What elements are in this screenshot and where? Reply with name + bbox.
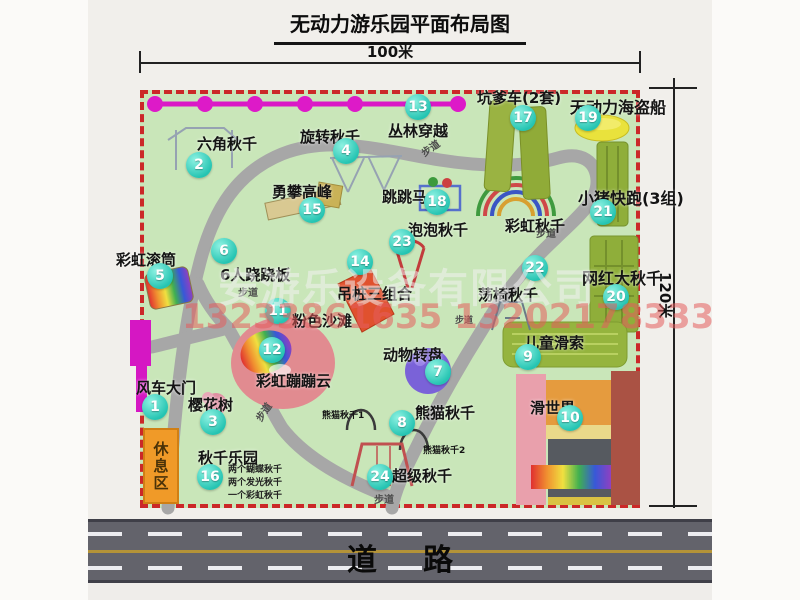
watermark-phone: 13233861635 13202178333 <box>182 297 714 337</box>
height-dimension-tick-bottom <box>649 505 697 507</box>
attraction-label-15: 勇攀高峰 <box>272 181 332 202</box>
rest-area: 休息区 <box>143 428 179 504</box>
attraction-marker-15: 15 <box>299 197 325 223</box>
width-dimension-label: 100米 <box>140 41 640 62</box>
road-label: 道路 <box>88 535 712 579</box>
attraction-marker-1: 1 <box>142 394 168 420</box>
page-title: 无动力游乐园平面布局图 <box>274 8 526 45</box>
layout-plan-page: 无动力游乐园平面布局图 100米 120米 <box>0 0 800 600</box>
bottom-margin <box>88 583 712 600</box>
road: 道路 <box>88 519 712 583</box>
attraction-label-23: 泡泡秋千 <box>408 219 468 240</box>
title-row: 无动力游乐园平面布局图 <box>0 8 800 45</box>
swing-park-note-line: 一个彩虹秋千 <box>228 490 282 503</box>
path-label: 步道 <box>374 491 394 506</box>
attraction-marker-21: 21 <box>590 199 616 225</box>
attraction-marker-10: 10 <box>557 405 583 431</box>
width-dimension-line <box>140 62 640 64</box>
attraction-marker-2: 2 <box>186 152 212 178</box>
width-dimension-tick-left <box>139 51 141 73</box>
attraction-marker-17: 17 <box>510 105 536 131</box>
panda-swing-2-label: 熊猫秋千2 <box>423 443 465 456</box>
attraction-label-12: 彩虹蹦蹦云 <box>256 370 331 391</box>
swing-park-note-line: 两个发光秋千 <box>228 477 282 490</box>
attraction-marker-8: 8 <box>389 410 415 436</box>
path-label: 步道 <box>536 225 556 240</box>
attraction-marker-5: 5 <box>147 263 173 289</box>
attraction-marker-12: 12 <box>259 337 285 363</box>
attraction-marker-9: 9 <box>515 344 541 370</box>
swing-park-note-line: 两个蝴蝶秋千 <box>228 464 282 477</box>
rest-area-label: 休息区 <box>151 441 172 492</box>
panda-swing-1-label: 熊猫秋千1 <box>322 408 364 421</box>
attraction-label-24: 超级秋千 <box>392 465 452 486</box>
attraction-marker-24: 24 <box>367 464 393 490</box>
attraction-marker-18: 18 <box>424 189 450 215</box>
attraction-label-2: 六角秋千 <box>197 133 257 154</box>
attraction-marker-19: 19 <box>575 105 601 131</box>
attraction-marker-3: 3 <box>200 409 226 435</box>
attraction-marker-13: 13 <box>405 94 431 120</box>
width-dimension-tick-right <box>639 51 641 73</box>
attraction-label-8: 熊猫秋千 <box>415 402 475 423</box>
height-dimension-tick-top <box>649 87 697 89</box>
attraction-marker-7: 7 <box>425 359 451 385</box>
attraction-label-1: 风车大门 <box>136 377 196 398</box>
rainbow-swing-label: 彩虹秋千 <box>505 215 565 236</box>
attraction-marker-4: 4 <box>333 138 359 164</box>
swing-park-note: 两个蝴蝶秋千 两个发光秋千 一个彩虹秋千 <box>228 464 282 503</box>
attraction-label-18: 跳跳马 <box>382 186 427 207</box>
attraction-label-13: 丛林穿越 <box>388 120 448 141</box>
attraction-marker-23: 23 <box>389 229 415 255</box>
attraction-marker-16: 16 <box>197 464 223 490</box>
